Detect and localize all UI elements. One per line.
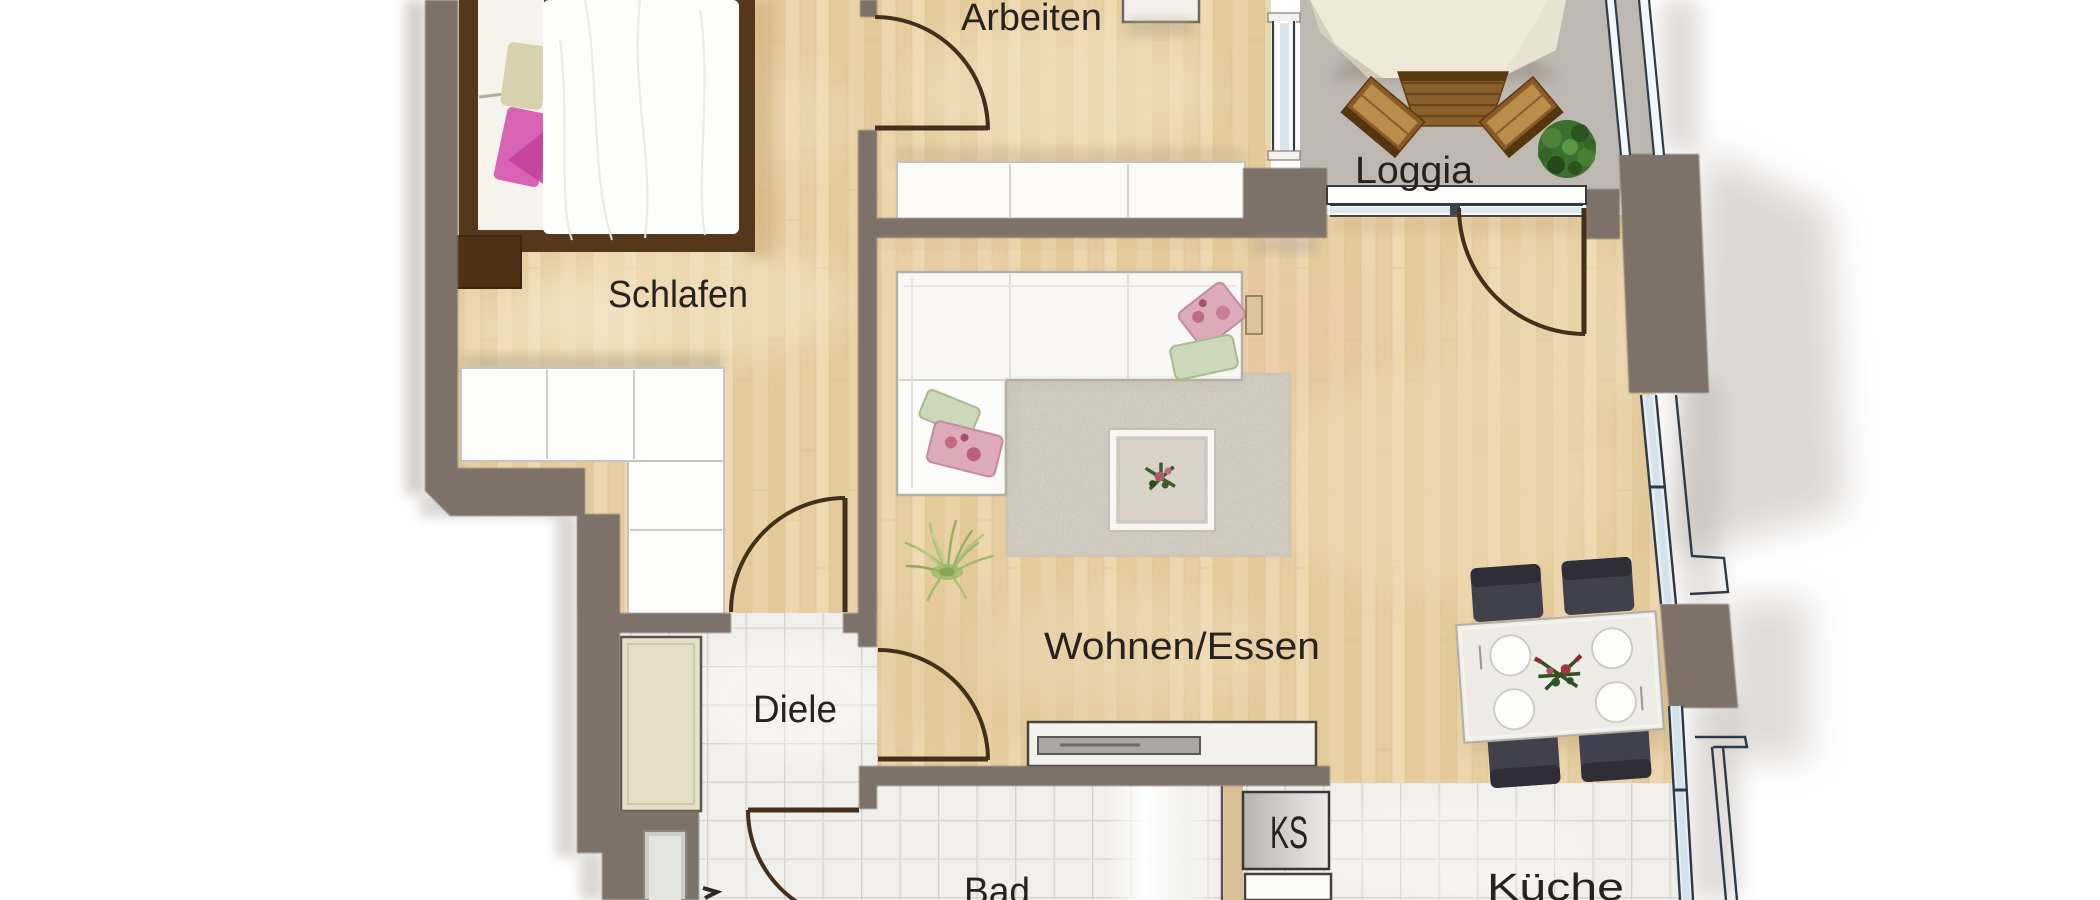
svg-text:Wohnen/Essen: Wohnen/Essen [1044, 626, 1320, 668]
svg-text:Küche: Küche [1487, 867, 1624, 900]
svg-text:Schlafen: Schlafen [608, 274, 748, 316]
svg-text:Loggia: Loggia [1355, 150, 1474, 192]
svg-text:KS: KS [1270, 807, 1308, 858]
svg-text:Bad: Bad [964, 871, 1030, 900]
svg-text:Diele: Diele [753, 689, 837, 731]
svg-text:Arbeiten: Arbeiten [961, 0, 1102, 39]
